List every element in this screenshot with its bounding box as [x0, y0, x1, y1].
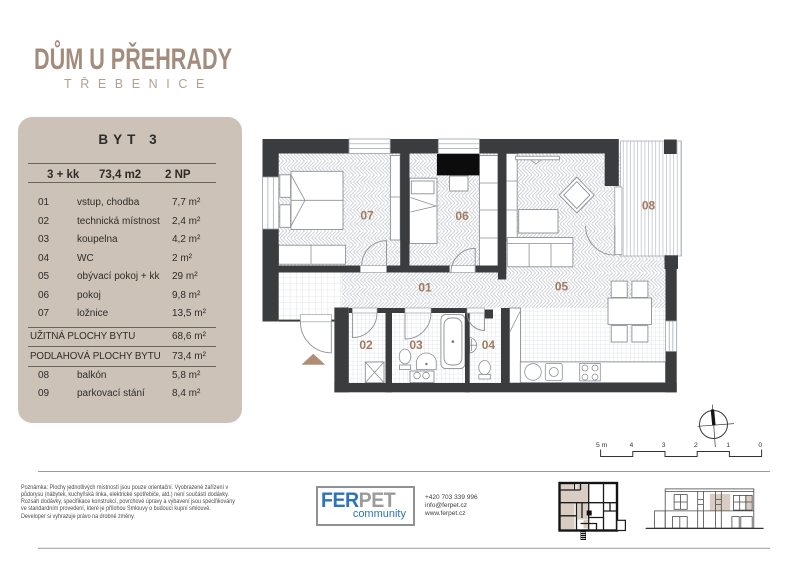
svg-text:1: 1 [726, 442, 730, 449]
svg-text:04: 04 [482, 338, 496, 352]
svg-text:07: 07 [360, 209, 374, 223]
svg-text:08: 08 [642, 199, 656, 213]
svg-text:01: 01 [418, 281, 432, 295]
svg-text:3: 3 [662, 442, 666, 449]
svg-text:4: 4 [630, 442, 634, 449]
svg-text:02: 02 [359, 338, 373, 352]
svg-text:06: 06 [455, 209, 469, 223]
svg-text:2: 2 [694, 442, 698, 449]
svg-text:05: 05 [555, 280, 569, 294]
svg-text:03: 03 [409, 338, 423, 352]
svg-text:5 m: 5 m [596, 442, 608, 449]
svg-text:0: 0 [758, 442, 762, 449]
